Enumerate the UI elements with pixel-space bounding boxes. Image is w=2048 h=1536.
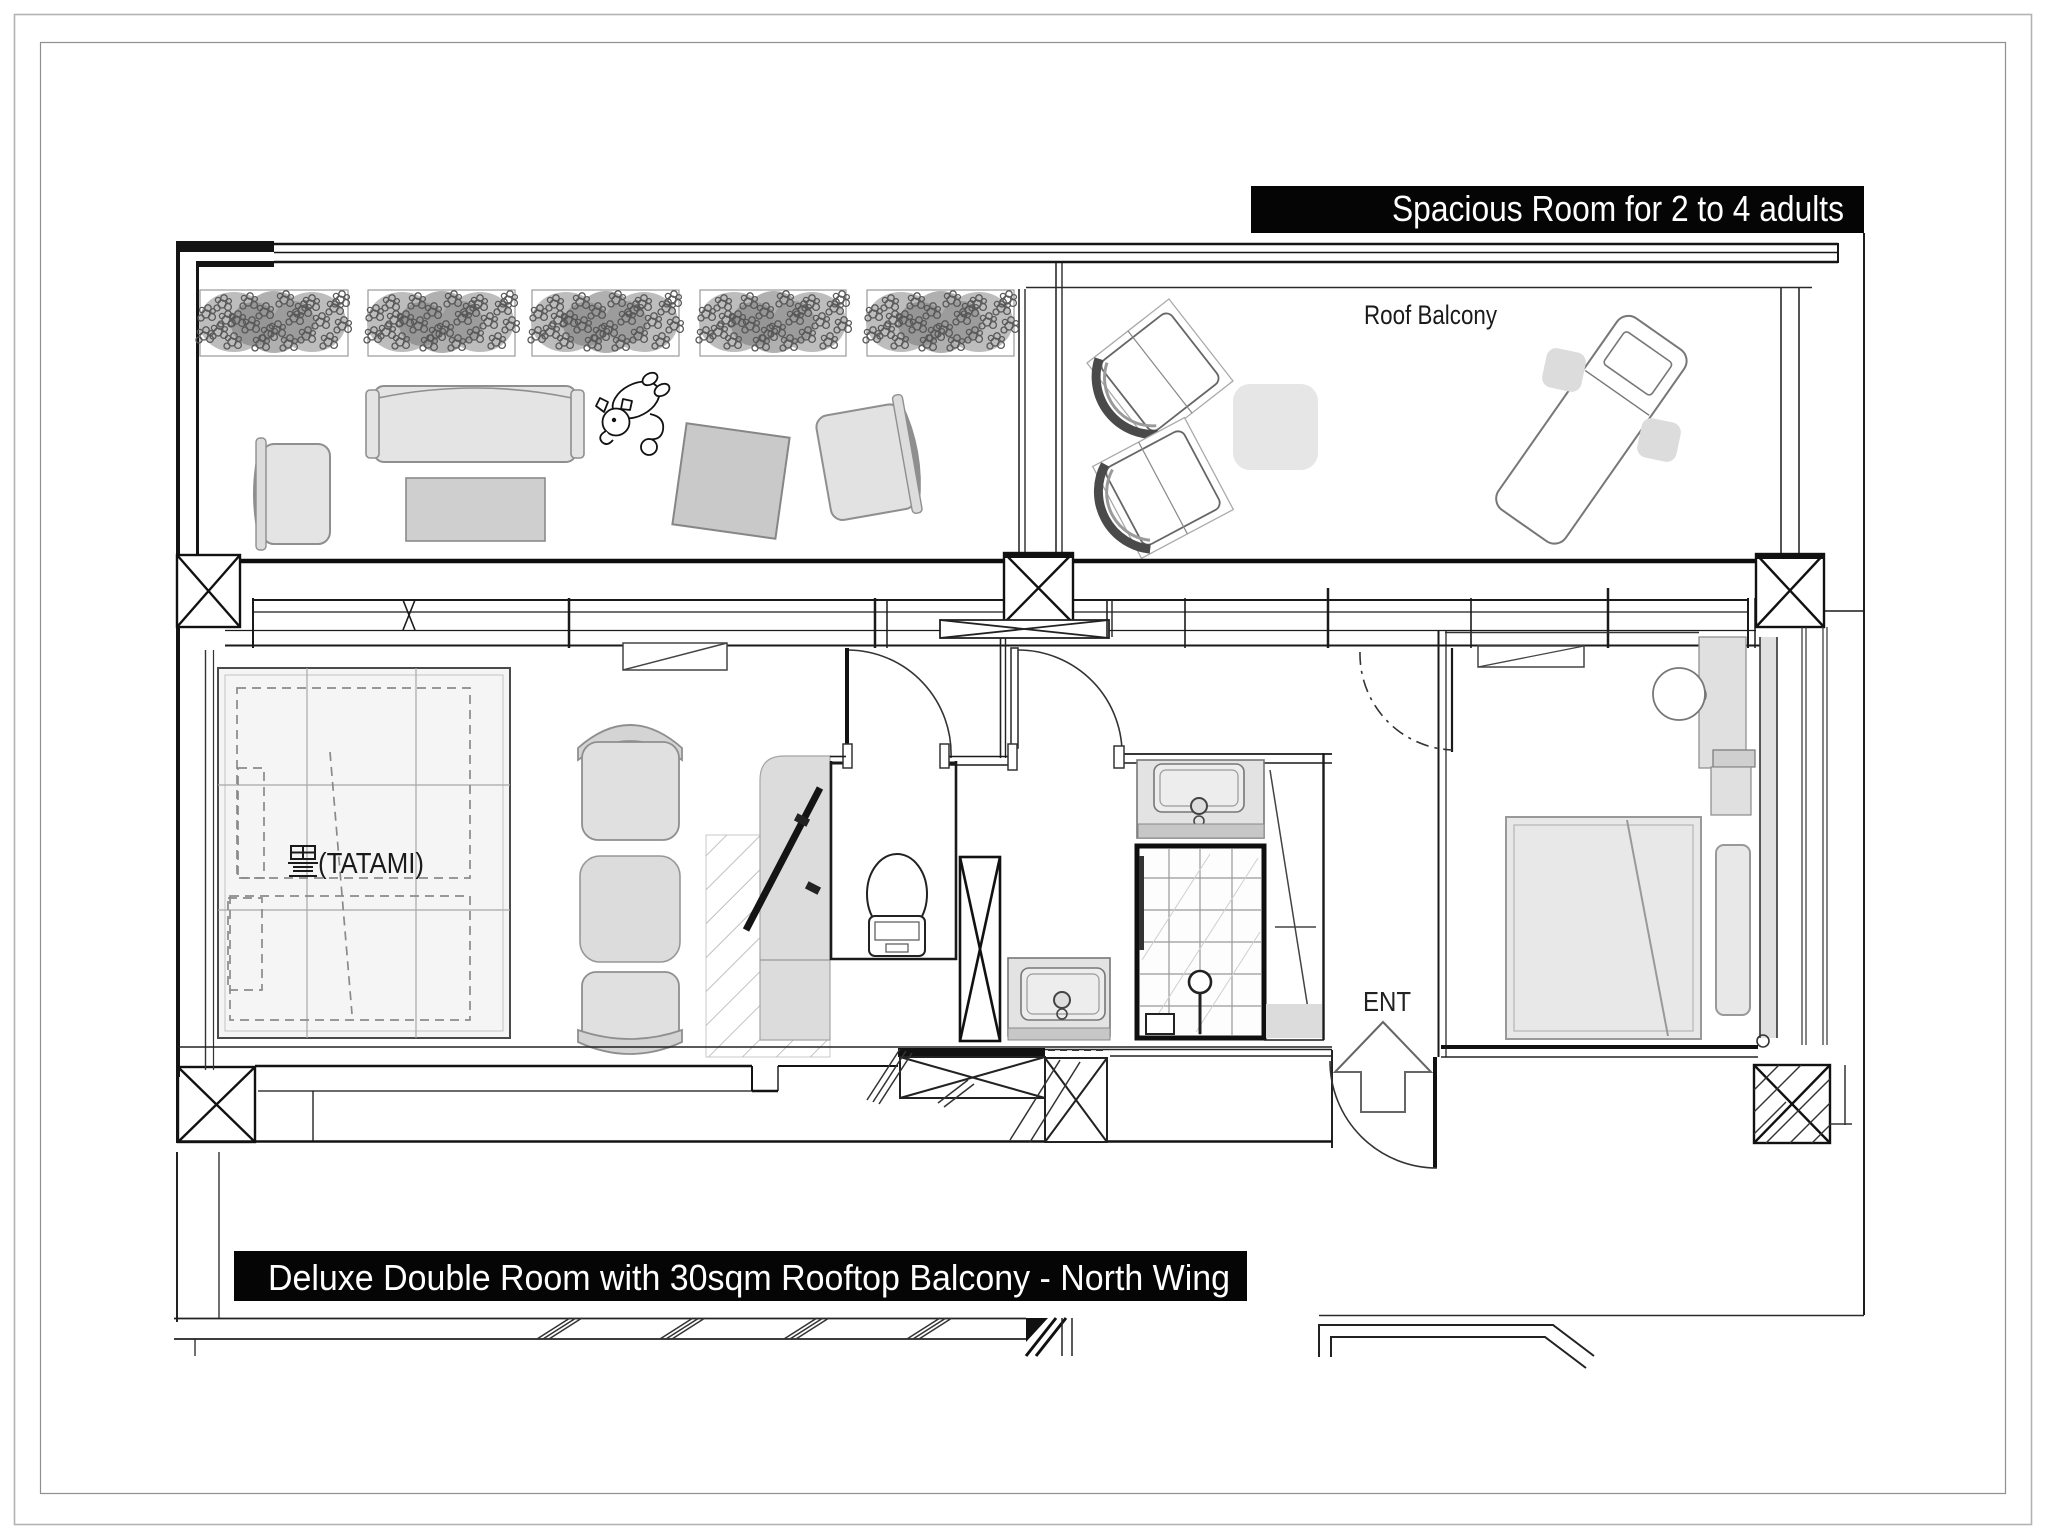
svg-text:(TATAMI): (TATAMI) [318, 848, 424, 880]
svg-text:Deluxe Double Room with 30sqm: Deluxe Double Room with 30sqm Rooftop Ba… [268, 1257, 1230, 1298]
svg-text:Spacious Room for 2 to 4 adult: Spacious Room for 2 to 4 adults [1392, 188, 1844, 229]
svg-text:ENT: ENT [1363, 986, 1411, 1017]
svg-text:Roof Balcony: Roof Balcony [1364, 300, 1497, 330]
